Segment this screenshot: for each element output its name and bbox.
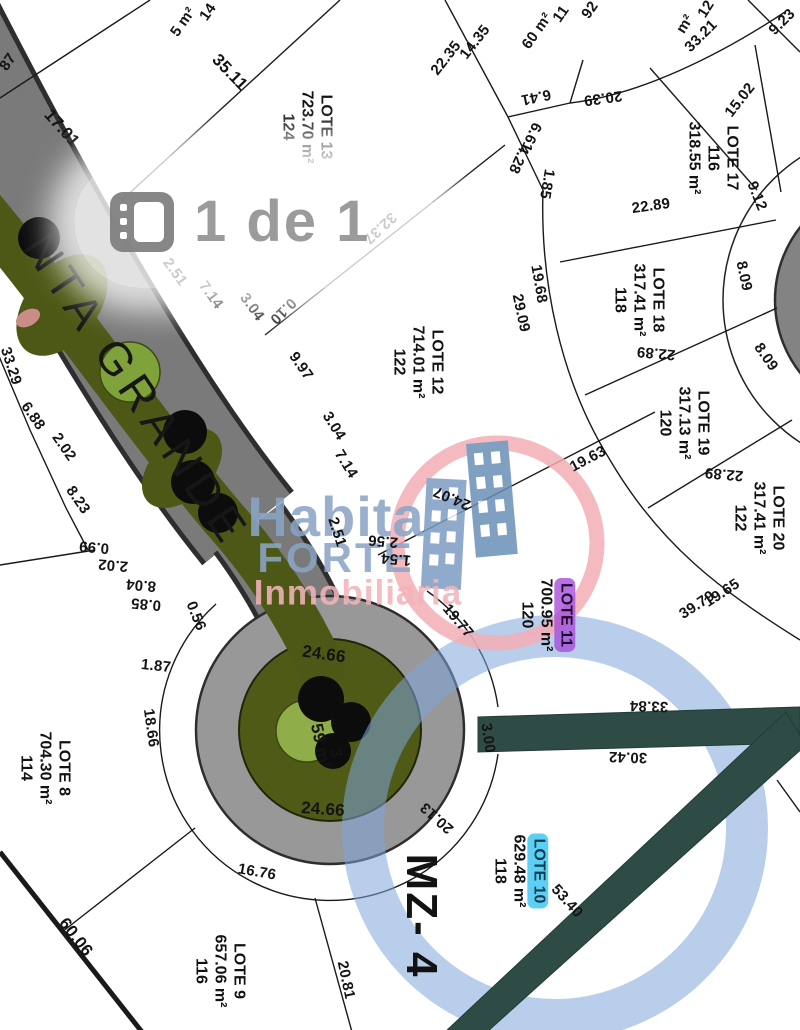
page-indicator-text: 1 de 1 xyxy=(194,193,370,251)
lot-label-11: LOTE 11 700.95 m²120 xyxy=(517,578,576,652)
lot-label-19: LOTE 19317.13 m²120 xyxy=(655,387,712,460)
measurement: 22.89 xyxy=(636,344,676,362)
lot-label-20: LOTE 20317.41 m²122 xyxy=(730,482,787,555)
measurement: 33.84 xyxy=(629,698,668,714)
measurement: 8.04 xyxy=(125,576,156,594)
measurement: 2.56 xyxy=(367,532,398,550)
lot-label-9: LOTE 9657.06 m²116 xyxy=(191,935,248,1008)
lot-label-13: LOTE 13723.70 m²124 xyxy=(278,91,335,164)
measurement: 0.85 xyxy=(130,595,161,613)
watermark-line3: Inmobiliaria xyxy=(254,576,462,611)
lot-label-17: LOTE 17116318.55 m² xyxy=(684,122,741,195)
lot-label-18: LOTE 18317.41 m²118 xyxy=(610,264,667,337)
purple-highlight: LOTE 11 xyxy=(554,578,575,652)
lot-label-8: LOTE 8704.30 m²114 xyxy=(16,732,73,805)
pages-icon xyxy=(110,192,174,252)
measurement: 30.42 xyxy=(608,749,647,765)
measurement: 22.89 xyxy=(704,465,744,483)
measurement: 0.99 xyxy=(78,538,109,556)
lot-label-10: LOTE 10 629.48 m²118 xyxy=(490,834,549,909)
measurement: 1.87 xyxy=(140,657,171,675)
lot-label-12: LOTE 12714.01 m²122 xyxy=(389,326,446,399)
measurement: 24.66 xyxy=(301,799,346,819)
block-label: MZ- 4 xyxy=(399,854,443,979)
measurement: 2.02 xyxy=(97,556,128,574)
map-canvas[interactable]: NTA GRANDE MZ- 4 Habita FORTE Inmobiliar… xyxy=(0,0,800,1030)
page-indicator: 1 de 1 xyxy=(74,156,436,288)
cyan-highlight: LOTE 10 xyxy=(527,834,548,909)
measurement: 3.00 xyxy=(478,722,497,754)
measurement: 1.54 xyxy=(380,550,411,568)
